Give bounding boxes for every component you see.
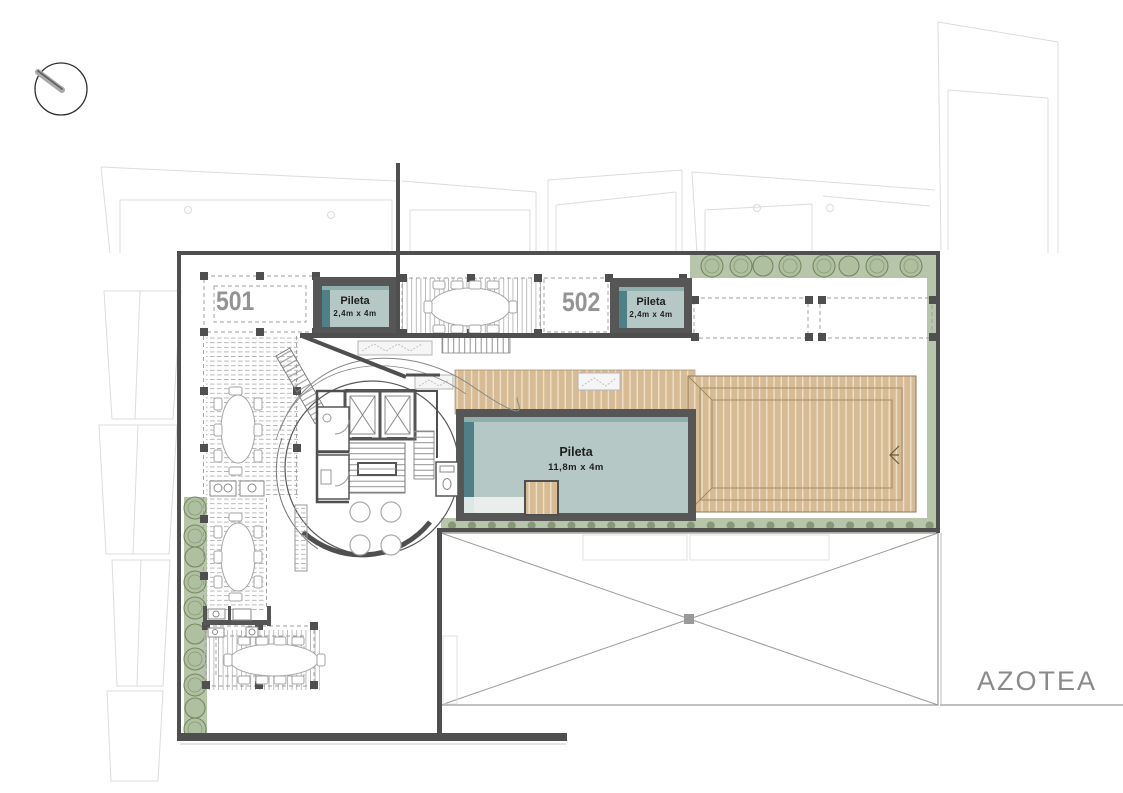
pool-label-main: Pileta 11,8m x 4m bbox=[460, 446, 692, 472]
floor-plan-canvas: 501 502 Pileta 2,4m x 4m Pileta 2,4m x 4… bbox=[0, 0, 1123, 793]
pool-name: Pileta bbox=[460, 446, 692, 459]
pool-size: 2,4m x 4m bbox=[612, 311, 690, 319]
unit-label-502: 502 bbox=[562, 289, 600, 316]
north-arrow-icon bbox=[35, 63, 87, 115]
unit-label-501: 501 bbox=[216, 288, 254, 315]
pool-name: Pileta bbox=[612, 297, 690, 308]
pool-size: 2,4m x 4m bbox=[316, 310, 394, 318]
planter-box bbox=[295, 505, 307, 571]
core-tables bbox=[350, 502, 401, 555]
elevators bbox=[345, 389, 415, 440]
pool-label-502: Pileta 2,4m x 4m bbox=[612, 297, 690, 319]
pool-name: Pileta bbox=[316, 296, 394, 307]
pool-label-501: Pileta 2,4m x 4m bbox=[316, 296, 394, 318]
pool-size: 11,8m x 4m bbox=[460, 463, 692, 473]
floor-name-label: AZOTEA bbox=[897, 668, 1097, 695]
